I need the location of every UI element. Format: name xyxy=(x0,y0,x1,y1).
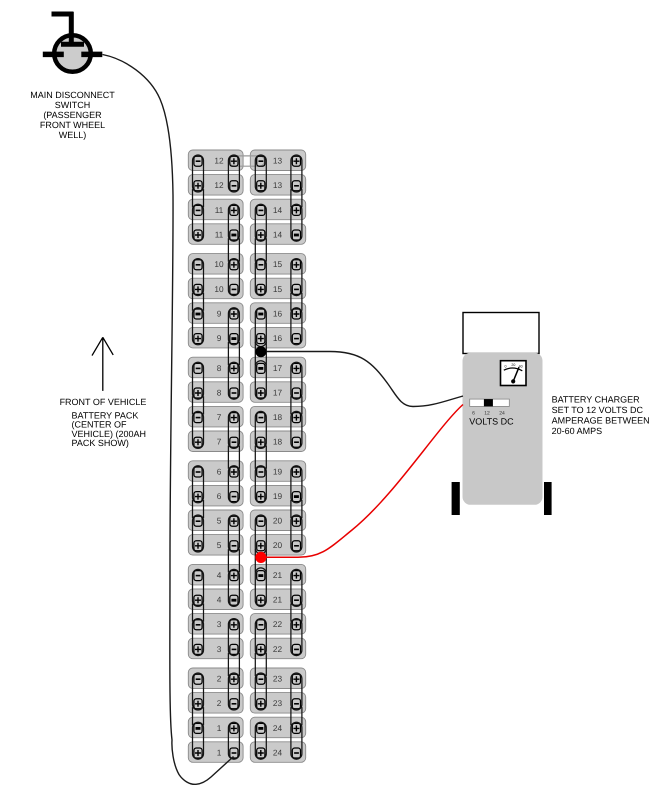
svg-text:3: 3 xyxy=(217,644,222,654)
svg-text:22: 22 xyxy=(273,619,283,629)
svg-text:11: 11 xyxy=(215,229,224,239)
svg-text:2: 2 xyxy=(217,674,222,684)
svg-text:0: 0 xyxy=(505,365,507,369)
svg-text:4: 4 xyxy=(217,595,222,605)
svg-text:17: 17 xyxy=(273,387,283,397)
svg-text:8: 8 xyxy=(217,363,222,373)
svg-text:20: 20 xyxy=(273,516,283,526)
svg-text:24: 24 xyxy=(273,747,283,757)
svg-text:7: 7 xyxy=(217,437,222,447)
svg-text:4: 4 xyxy=(217,570,222,580)
svg-text:20: 20 xyxy=(511,363,515,367)
svg-text:16: 16 xyxy=(273,333,283,343)
svg-text:16: 16 xyxy=(273,308,283,318)
svg-text:15: 15 xyxy=(273,284,283,294)
svg-text:9: 9 xyxy=(217,333,222,343)
svg-text:SET TO 12 VOLTS DC: SET TO 12 VOLTS DC xyxy=(552,405,644,415)
svg-text:1: 1 xyxy=(217,747,222,757)
svg-text:9: 9 xyxy=(217,308,222,318)
svg-text:12: 12 xyxy=(214,180,224,190)
svg-text:6: 6 xyxy=(217,466,222,476)
svg-text:23: 23 xyxy=(273,698,283,708)
svg-text:7: 7 xyxy=(217,412,222,422)
svg-text:10: 10 xyxy=(214,259,224,269)
svg-text:5: 5 xyxy=(217,516,222,526)
svg-text:BATTERY CHARGER: BATTERY CHARGER xyxy=(552,394,641,404)
svg-text:19: 19 xyxy=(273,466,283,476)
svg-text:14: 14 xyxy=(273,229,283,239)
svg-text:SWITCH: SWITCH xyxy=(55,100,91,110)
svg-text:11: 11 xyxy=(215,205,224,215)
svg-text:2: 2 xyxy=(217,698,222,708)
svg-text:22: 22 xyxy=(273,644,283,654)
svg-text:8: 8 xyxy=(217,387,222,397)
svg-text:WELL): WELL) xyxy=(59,130,87,140)
svg-text:12: 12 xyxy=(214,156,224,166)
svg-text:21: 21 xyxy=(273,570,283,580)
svg-text:MAIN DISCONNECT: MAIN DISCONNECT xyxy=(30,90,115,100)
svg-text:17: 17 xyxy=(273,363,283,373)
svg-text:PACK SHOW): PACK SHOW) xyxy=(72,438,129,448)
svg-text:18: 18 xyxy=(273,437,283,447)
svg-text:23: 23 xyxy=(273,674,283,684)
svg-text:6: 6 xyxy=(217,491,222,501)
svg-text:24: 24 xyxy=(273,723,283,733)
svg-text:FRONT OF VEHICLE: FRONT OF VEHICLE xyxy=(60,397,147,407)
svg-text:10: 10 xyxy=(214,284,224,294)
svg-text:21: 21 xyxy=(273,595,283,605)
svg-text:14: 14 xyxy=(273,205,283,215)
svg-text:FRONT WHEEL: FRONT WHEEL xyxy=(40,120,105,130)
svg-text:13: 13 xyxy=(273,156,283,166)
svg-text:AMPERAGE BETWEEN: AMPERAGE BETWEEN xyxy=(552,415,650,425)
svg-text:13: 13 xyxy=(273,180,283,190)
svg-text:20-60 AMPS: 20-60 AMPS xyxy=(552,426,603,436)
svg-text:20: 20 xyxy=(273,540,283,550)
svg-text:18: 18 xyxy=(273,412,283,422)
svg-text:VOLTS DC: VOLTS DC xyxy=(469,417,514,427)
svg-text:19: 19 xyxy=(273,491,283,501)
svg-text:15: 15 xyxy=(273,259,283,269)
svg-text:3: 3 xyxy=(217,619,222,629)
svg-text:1: 1 xyxy=(217,723,222,733)
svg-text:5: 5 xyxy=(217,540,222,550)
svg-text:(PASSENGER: (PASSENGER xyxy=(43,110,102,120)
